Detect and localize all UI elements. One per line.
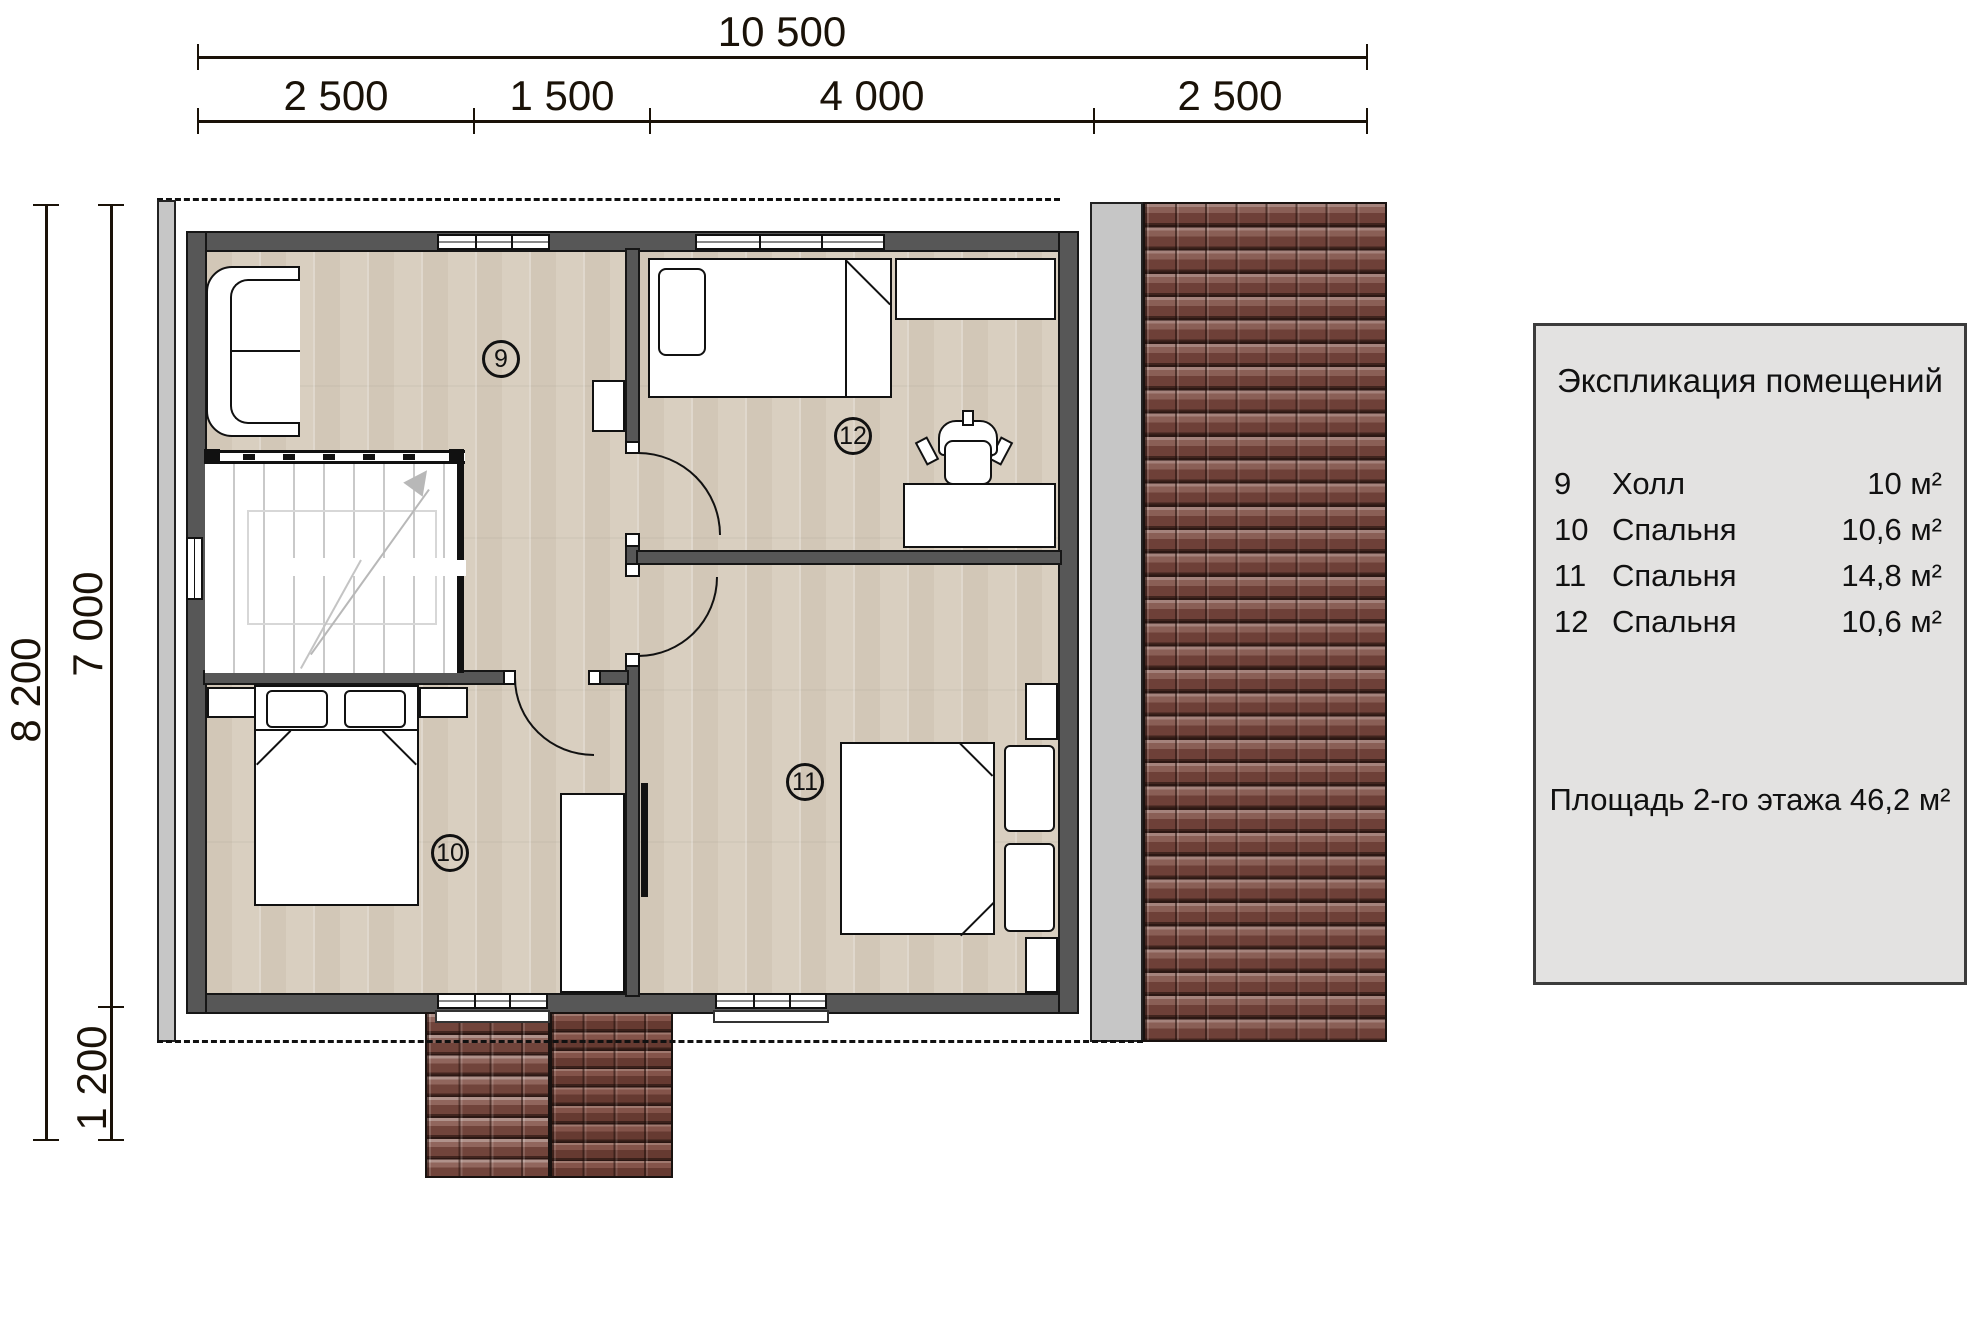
chair-knob xyxy=(962,410,974,426)
wall-right xyxy=(1060,233,1077,1012)
sofa-divider xyxy=(232,350,300,352)
desk-room12 xyxy=(903,483,1056,548)
pillow xyxy=(266,690,328,728)
wall-bottom xyxy=(188,995,1077,1012)
wardrobe xyxy=(560,793,625,993)
roof-edge-right xyxy=(1090,202,1143,1042)
baluster xyxy=(243,454,255,460)
chair-seat xyxy=(944,440,992,485)
room-label-11: 11 xyxy=(786,763,824,801)
wall-room10-top-a xyxy=(205,672,503,683)
legend-row: 9 Холл 10 м² xyxy=(1536,466,1964,506)
tick xyxy=(33,1139,59,1141)
room-number: 10 xyxy=(436,839,464,868)
roof-tiles-right xyxy=(1143,202,1387,1042)
bed-body-line xyxy=(255,729,418,731)
bed-blanket-edge xyxy=(845,260,847,396)
balcony-tiles-left xyxy=(425,1012,550,1178)
wall-left xyxy=(188,233,205,1012)
baluster xyxy=(363,454,375,460)
legend-total-area: Площадь 2-го этажа 46,2 м² xyxy=(1536,782,1964,818)
room-label-12: 12 xyxy=(834,417,872,455)
dim-top-seg-3: 4 000 xyxy=(792,72,952,120)
legend-row: 10 Спальня 10,6 м² xyxy=(1536,512,1964,552)
legend-room-area: 14,8 м² xyxy=(1841,558,1942,594)
wall-center-mid xyxy=(627,547,638,563)
balcony-tiles-right xyxy=(550,1012,673,1178)
dim-top-seg-1: 2 500 xyxy=(256,72,416,120)
tick xyxy=(1093,108,1095,134)
hall-cabinet xyxy=(592,380,625,432)
legend-room-number: 12 xyxy=(1554,604,1588,640)
dim-left-seg-2: 1 200 xyxy=(68,998,116,1158)
legend-panel: Экспликация помещений 9 Холл 10 м² 10 Сп… xyxy=(1533,323,1967,985)
legend-row: 11 Спальня 14,8 м² xyxy=(1536,558,1964,598)
legend-room-area: 10,6 м² xyxy=(1841,512,1942,548)
wall-center-lower xyxy=(627,667,638,995)
tick xyxy=(197,44,199,70)
pillow xyxy=(344,690,406,728)
window-top-hall xyxy=(437,234,550,250)
dim-left-total: 8 200 xyxy=(2,610,50,770)
legend-title: Экспликация помещений xyxy=(1536,362,1964,400)
tick xyxy=(98,1139,124,1141)
tick xyxy=(649,108,651,134)
room-number: 12 xyxy=(839,422,867,451)
nightstand-room11-bottom xyxy=(1025,937,1058,993)
baluster xyxy=(323,454,335,460)
room-label-10: 10 xyxy=(431,834,469,872)
bed-room11 xyxy=(840,742,995,935)
wall-room10-top-b xyxy=(600,672,627,683)
tick xyxy=(33,204,59,206)
room-label-9: 9 xyxy=(482,340,520,378)
wall-center-upper xyxy=(627,250,638,441)
window-top-room12 xyxy=(695,234,885,250)
railing-post xyxy=(204,449,220,464)
window-sill xyxy=(435,1010,550,1023)
pillow xyxy=(1004,843,1055,932)
cabinet-room12 xyxy=(895,258,1056,320)
wall-top xyxy=(188,233,1077,250)
baluster xyxy=(283,454,295,460)
roof-dashed-bottom xyxy=(157,1040,1143,1043)
pillow xyxy=(1004,745,1055,832)
window-left-stairs xyxy=(186,537,203,600)
roof-edge-left xyxy=(157,200,176,1042)
tick xyxy=(473,108,475,134)
dim-line-left-segments xyxy=(110,205,113,1140)
dim-line-left-total xyxy=(45,205,48,1140)
baluster xyxy=(403,454,415,460)
legend-room-number: 9 xyxy=(1554,466,1571,502)
tick xyxy=(1366,44,1368,70)
pillow xyxy=(658,268,706,356)
legend-room-area: 10,6 м² xyxy=(1841,604,1942,640)
dim-line-top-total xyxy=(198,56,1367,59)
legend-room-number: 11 xyxy=(1554,558,1586,594)
window-bottom-room11 xyxy=(715,993,827,1009)
dim-top-seg-2: 1 500 xyxy=(482,72,642,120)
door-jamb xyxy=(625,563,640,577)
window-sill xyxy=(713,1010,829,1023)
nightstand-room10-right xyxy=(419,687,468,718)
railing-post xyxy=(449,449,464,464)
tick xyxy=(98,204,124,206)
legend-room-name: Холл xyxy=(1612,466,1685,502)
legend-room-number: 10 xyxy=(1554,512,1588,548)
wall-mid-horizontal xyxy=(638,552,1060,563)
dim-top-seg-4: 2 500 xyxy=(1150,72,1310,120)
dim-left-seg-1: 7 000 xyxy=(64,544,112,704)
tick xyxy=(98,1006,124,1008)
legend-room-area: 10 м² xyxy=(1867,466,1942,502)
dim-line-top-segments xyxy=(198,120,1367,123)
tick xyxy=(1366,108,1368,134)
door-jamb xyxy=(625,533,640,547)
room-number: 11 xyxy=(792,768,818,797)
roof-dashed-top xyxy=(157,198,1060,201)
legend-room-name: Спальня xyxy=(1612,558,1737,594)
legend-room-name: Спальня xyxy=(1612,512,1737,548)
legend-room-name: Спальня xyxy=(1612,604,1737,640)
floor-plan-canvas: 10 500 2 500 1 500 4 000 2 500 8 200 7 0… xyxy=(0,0,1980,1319)
window-bottom-room10 xyxy=(437,993,548,1009)
dim-top-total: 10 500 xyxy=(702,8,862,56)
radiator xyxy=(641,783,648,897)
nightstand-room10-left xyxy=(207,687,257,718)
nightstand-room11-top xyxy=(1025,683,1058,740)
stair-right-wall-gap xyxy=(455,560,466,576)
room-number: 9 xyxy=(494,345,508,374)
legend-row: 12 Спальня 10,6 м² xyxy=(1536,604,1964,644)
tick xyxy=(197,108,199,134)
